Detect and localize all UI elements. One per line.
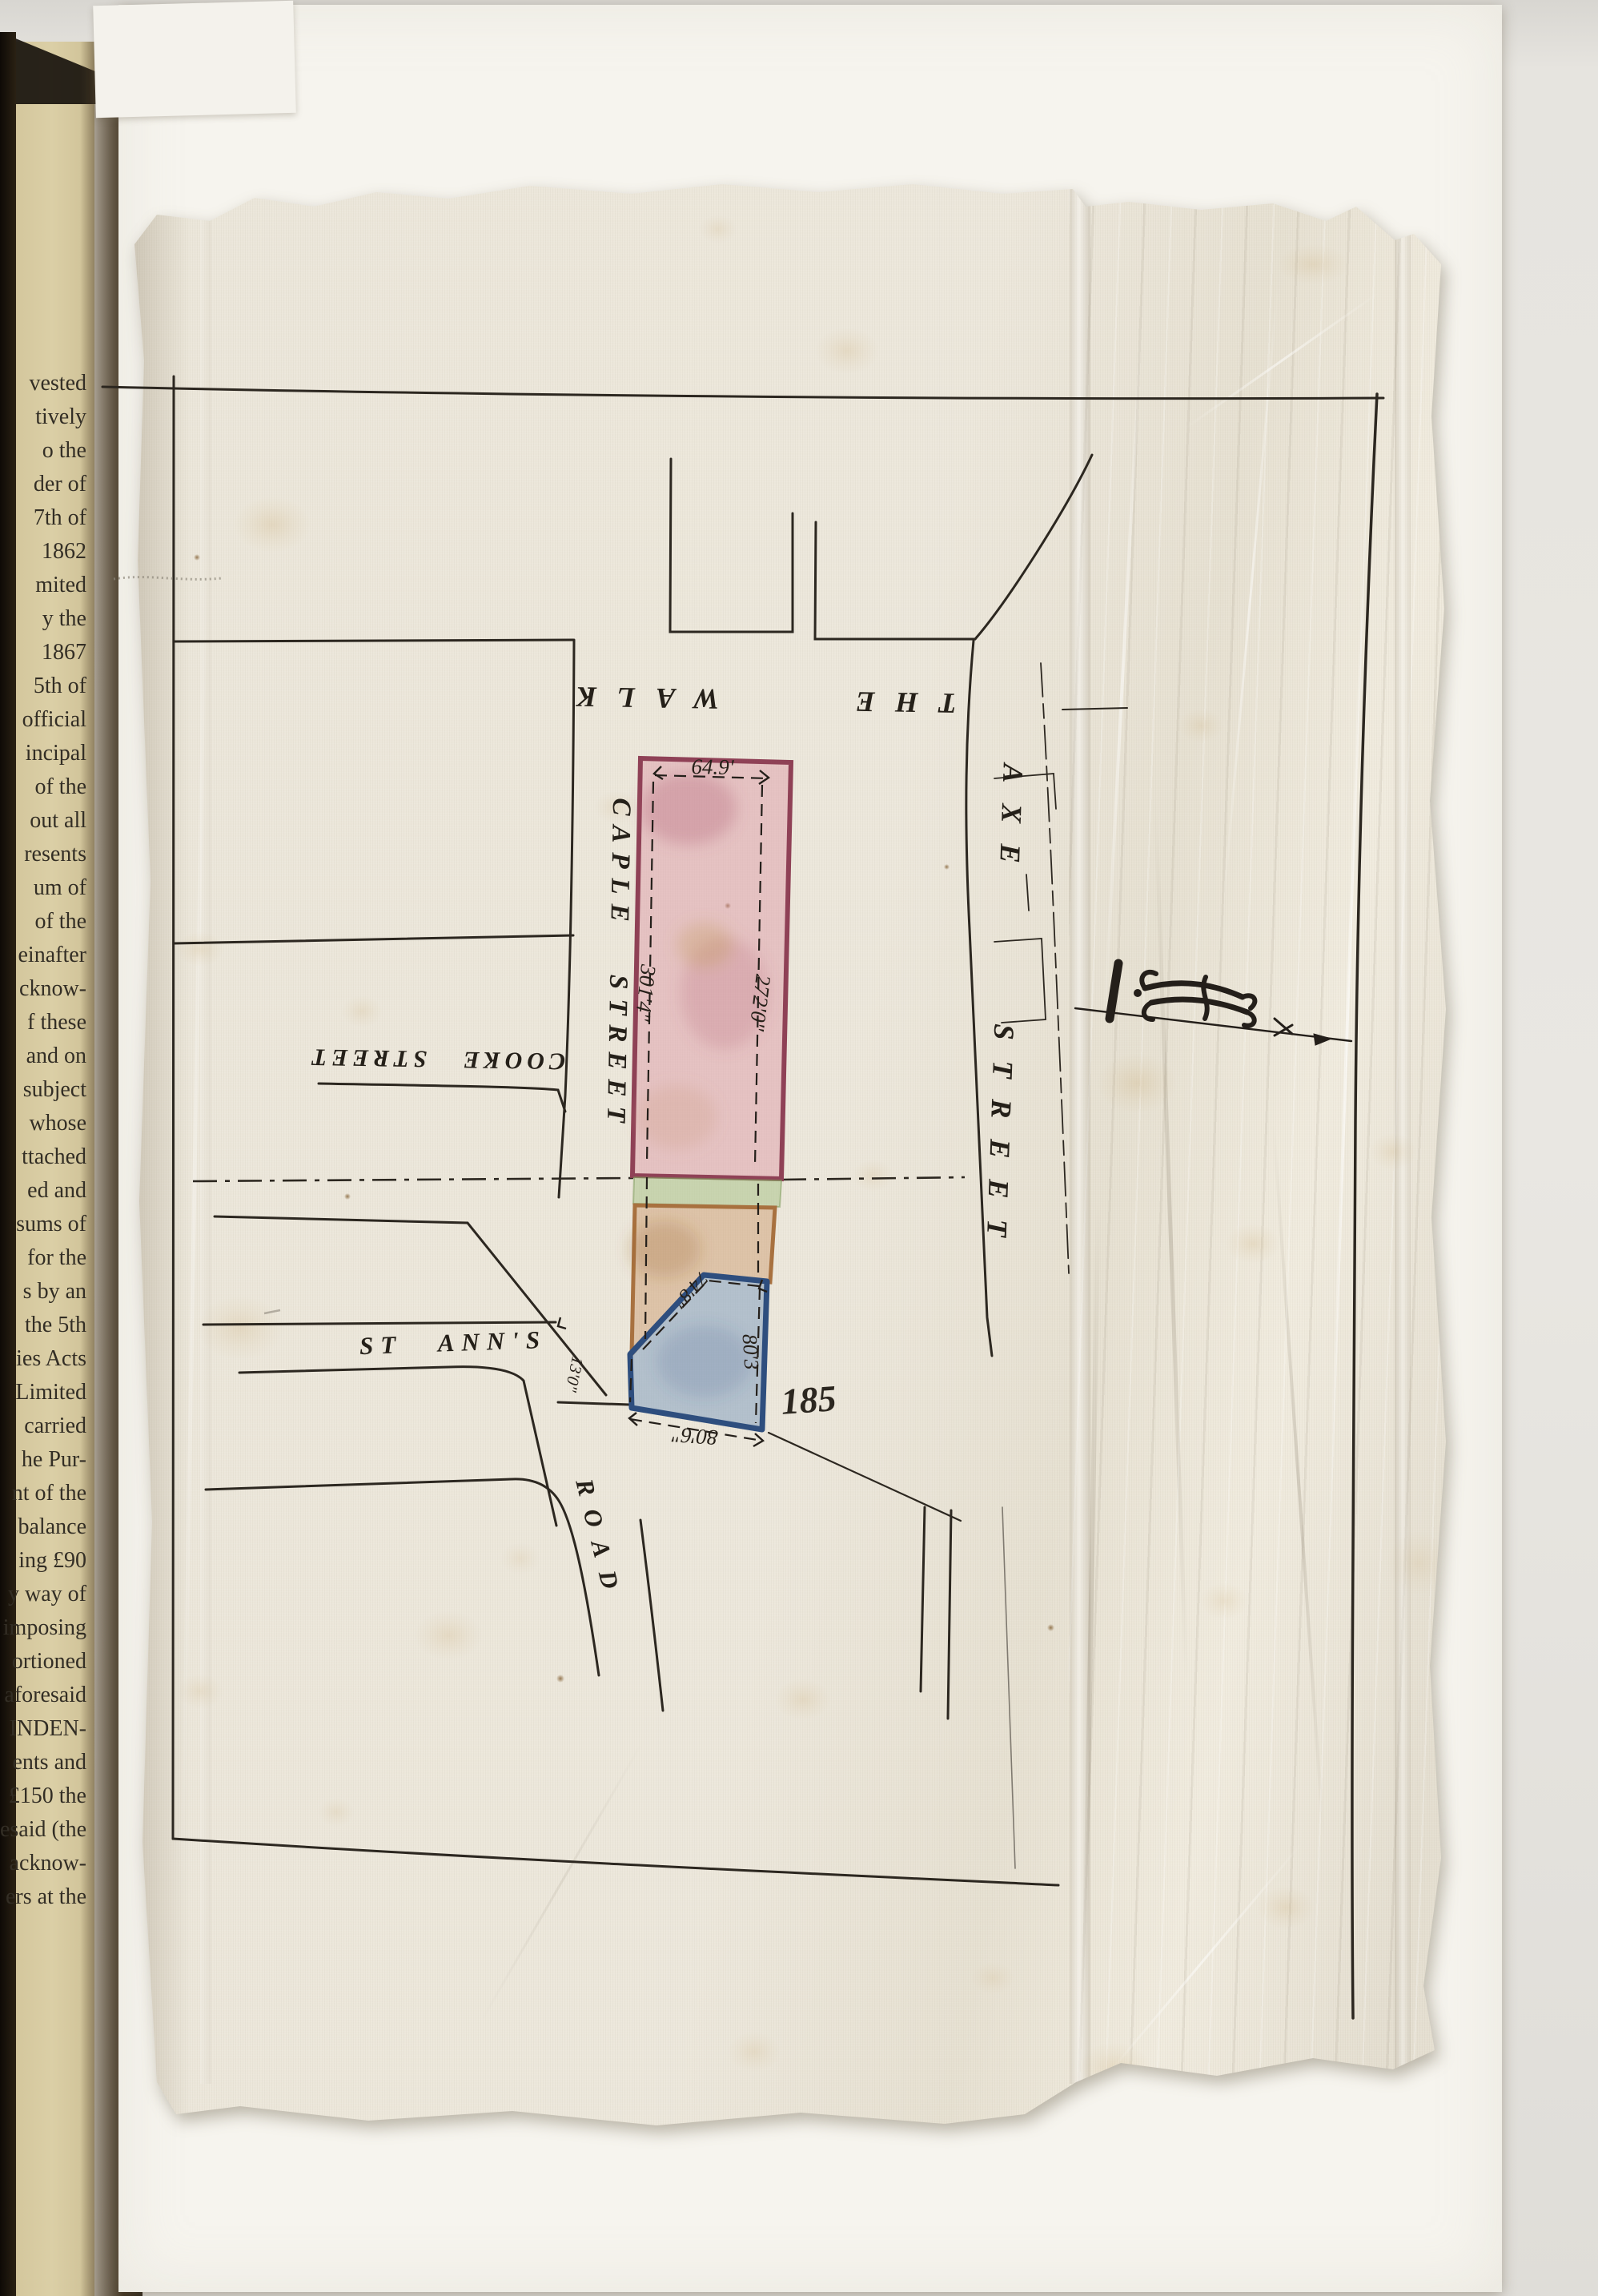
north-arrow-icon — [1075, 963, 1351, 1045]
street-label-caple-street: CAPLE STREET — [600, 798, 636, 1132]
plot-number: 185 — [780, 1377, 838, 1423]
photographed-deed-plan: vestedtivelyo theder of7th of1862mitedy … — [0, 0, 1598, 2296]
dimension-top-frontage: 64.9' — [691, 754, 734, 780]
dimension-blue-east: 80'3 — [737, 1333, 763, 1371]
street-label-cooke-street: COOKE STREET — [307, 1043, 566, 1075]
pencil-marks — [114, 577, 280, 1313]
green-strip-parcel — [633, 1177, 781, 1207]
dimension-blue-south: 80'6" — [671, 1422, 719, 1450]
plan-linework — [0, 0, 1598, 2296]
boundary-chain-line — [193, 1177, 965, 1181]
street-label-the-walk: THE WALK — [556, 680, 957, 721]
